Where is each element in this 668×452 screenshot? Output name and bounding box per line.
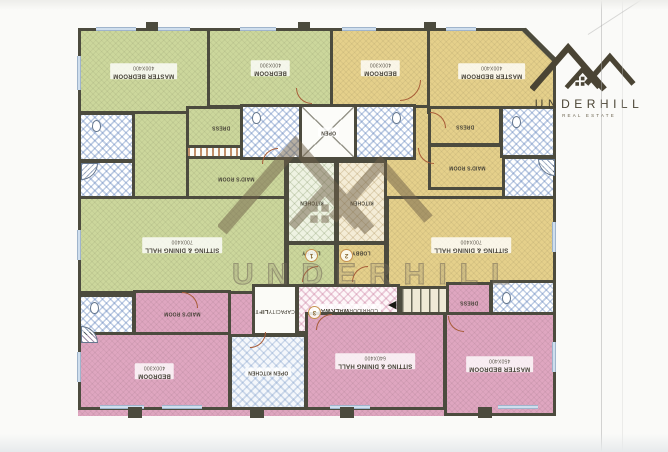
room-dims: 700X400 [145,238,219,245]
window [240,27,276,31]
room-label: SITTING & DINING HALL [434,246,508,252]
room-open-kitchen: OPEN KITCHEN [229,334,307,410]
room-lift: CAPACITYLIFT [252,284,298,336]
paper-edge-top [0,0,668,10]
room-dims: 700X400 [434,238,508,245]
room-label: MAID'S ROOM [449,164,485,171]
unit-number-badge-3: 3 [308,306,321,319]
room-kitchen-yellow: KITCHEN [336,160,387,244]
bathroom [78,112,135,162]
wall-pillar [340,407,354,418]
room-sitting-dining-green: SITTING & DINING HALL700X400 [78,196,287,294]
room-label: SITTING & DINING HALL [145,246,219,252]
toilet-icon [502,292,511,304]
wall-pillar [146,22,158,31]
room-label: MAID'S ROOM [164,310,200,317]
window [77,352,81,382]
room-dims: 400X300 [364,61,397,68]
room-label: BEDROOM [364,69,397,75]
underhill-logo: UNDERHILL REAL ESTATE [514,34,664,118]
window [162,405,202,409]
room-label: MASTER BEDROOM [461,72,522,78]
room-maid-yellow: MAID'S ROOM [428,144,506,190]
room-label: OPEN [318,128,339,137]
stairs-direction-arrow-icon: ◀ [388,300,396,311]
window [552,222,556,252]
window [446,27,476,31]
lift-sublabel: CAPACITY [269,308,295,314]
toilet-icon [90,302,99,314]
room-label: BEDROOM [254,69,287,75]
wall-pillar [250,407,264,418]
room-label: KITCHEN [300,199,324,206]
room-label: OPEN KITCHEN [245,368,291,377]
open-shaft: OPEN [299,104,357,160]
room-label: LIFT [255,308,268,314]
window [77,56,81,90]
window [96,27,136,31]
logo-tagline-text: REAL ESTATE [514,113,664,118]
room-dims: 400X300 [138,364,171,371]
room-label: SITTING & DINING HALL [338,362,412,368]
window [77,230,81,260]
room-label: DRESS [212,124,230,131]
room-kitchen-green: KITCHEN [286,160,337,244]
window [342,27,376,31]
room-label: BEDROOM [138,372,171,378]
room-dims: 400X400 [113,64,174,71]
floor-plan-scan: MASTER BEDROOM400X400 BEDROOM400X300 BED… [0,0,668,452]
unit-number-badge-2: 2 [340,249,353,262]
room-label: MASTER BEDROOM [113,72,174,78]
room-label: MAID'S ROOM [218,175,254,182]
scan-crease [601,0,602,452]
room-dims: 400X300 [254,61,287,68]
bathroom [354,104,416,160]
wall-pillar [128,407,142,418]
wall-pillar [298,22,310,31]
room-label: KITCHEN [350,199,374,206]
underhill-logo-icon [530,34,648,94]
toilet-icon [392,112,401,124]
room-label: DRESS [456,123,474,130]
window [498,405,538,409]
unit-number-badge-1: 1 [305,249,318,262]
room-label: LOBBY [352,249,371,256]
room-master-bedroom-green: MASTER BEDROOM400X400 [78,28,210,114]
wall-pillar [424,22,436,31]
room-bedroom-yellow: BEDROOM400X300 [330,28,430,108]
room-dims: 450X400 [469,357,530,364]
room-label: DRESS [460,299,478,306]
window [552,342,556,372]
logo-brand-text: UNDERHILL [514,97,664,111]
paper-edge-bottom [0,434,668,452]
room-bedroom-green: BEDROOM400X300 [207,28,333,108]
wall-pillar [478,407,492,418]
room-bedroom-pink: BEDROOM400X300 [78,332,231,410]
toilet-icon [92,120,101,132]
room-dims: 400X400 [461,64,522,71]
room-dims: 640X400 [338,354,412,361]
toilet-icon [252,112,261,124]
scan-crease [622,0,623,452]
room-label: MASTER BEDROOM [469,365,530,371]
